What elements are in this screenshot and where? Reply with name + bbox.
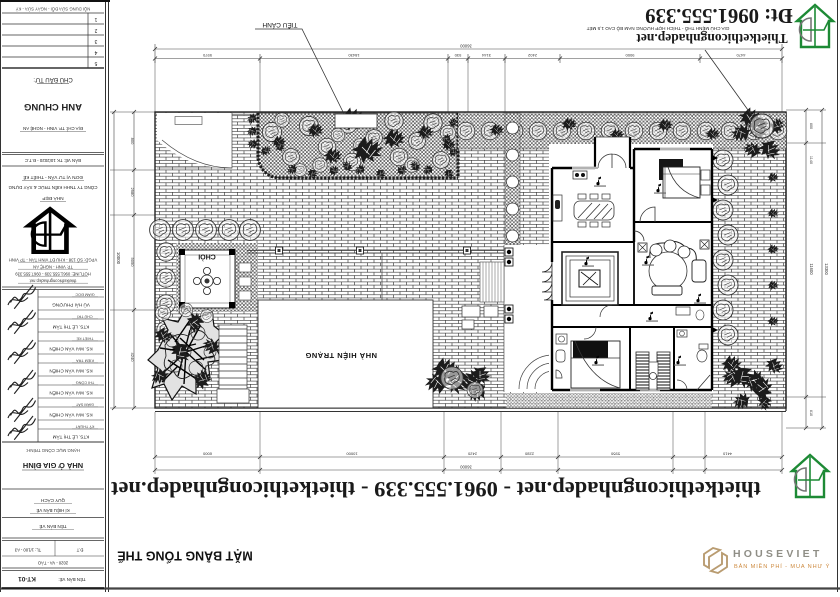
svg-text:KTS. LÊ THỊ TÂM: KTS. LÊ THỊ TÂM [53,325,90,332]
svg-text:KS. MAI VĂN CHIẾN: KS. MAI VĂN CHIẾN [49,391,92,397]
svg-text:4: 4 [94,49,97,55]
svg-text:600: 600 [809,123,813,129]
svg-text:4410: 4410 [722,451,732,456]
svg-text:ĐƠN VỊ TƯ VẤN - THIẾT KẾ: ĐƠN VỊ TƯ VẤN - THIẾT KẾ [23,175,82,181]
svg-text:2402: 2402 [527,53,537,58]
svg-text:thietkethicongnhadep.net - 096: thietkethicongnhadep.net - 0961.555.339 … [110,477,761,502]
svg-text:3144: 3144 [481,53,491,58]
svg-text:NHÀ HIỆN TRẠNG: NHÀ HIỆN TRẠNG [305,351,377,360]
svg-text:TÊN BẢN VẼ: TÊN BẢN VẼ [39,524,66,531]
svg-text:KÍ HIỆU BẢN VẼ: KÍ HIỆU BẢN VẼ [36,508,69,513]
svg-text:MẶT BẰNG TỔNG THỂ: MẶT BẰNG TỔNG THỂ [117,549,252,564]
svg-text:BẢN VẼ: TK 10/2020 - Đ.T.C: BẢN VẼ: TK 10/2020 - Đ.T.C [25,158,81,163]
svg-text:2020 - VA - TÀO: 2020 - VA - TÀO [37,560,68,565]
svg-text:BẢN MIỀN PHÍ - MUA NHƯ Ý: BẢN MIỀN PHÍ - MUA NHƯ Ý [734,563,830,570]
svg-text:GIÁM SÁT: GIÁM SÁT [75,403,94,407]
svg-text:6000: 6000 [202,451,212,456]
svg-text:4240: 4240 [130,353,135,363]
svg-text:5970: 5970 [202,53,212,58]
svg-text:11600: 11600 [809,263,814,275]
svg-text:5: 5 [94,60,97,66]
svg-text:ĐỊA CHỈ: TP. VINH - NGHỆ AN: ĐỊA CHỈ: TP. VINH - NGHỆ AN [23,126,83,131]
svg-text:13300: 13300 [824,263,829,275]
svg-text:9000: 9000 [625,53,635,58]
svg-text:Đt: 0961.555.339: Đt: 0961.555.339 [645,4,793,26]
svg-text:530: 530 [454,53,461,58]
svg-text:NỘI DUNG SỬA ĐỔI - NGÀY SỬA -: NỘI DUNG SỬA ĐỔI - NGÀY SỬA - KÝ [16,6,91,11]
svg-text:CÔNG TY TNHH KIẾN TRÚC & XÂY D: CÔNG TY TNHH KIẾN TRÚC & XÂY DỰNG [8,185,97,191]
svg-text:610: 610 [809,410,813,416]
svg-text:KS. MAI VĂN CHIẾN: KS. MAI VĂN CHIẾN [49,413,92,419]
svg-text:NHÀ ĐẸP: NHÀ ĐẸP [42,195,63,202]
svg-text:TIỂU CẢNH: TIỂU CẢNH [262,21,297,30]
svg-text:3: 3 [94,38,97,44]
svg-text:HOUSEVIET: HOUSEVIET [733,548,822,560]
svg-text:TL: 1/100 - A3: TL: 1/100 - A3 [14,547,41,552]
svg-text:TP. VINH - NGHỆ AN: TP. VINH - NGHỆ AN [33,264,73,269]
svg-text:2: 2 [94,27,97,33]
svg-text:HẠNG MỤC CÔNG TRÌNH:: HẠNG MỤC CÔNG TRÌNH: [26,448,80,453]
svg-text:HOTLINE: 0961.555.339 - 0967.5: HOTLINE: 0961.555.339 - 0967.555.339 [15,271,91,276]
svg-text:2420: 2420 [467,451,477,456]
svg-text:18430: 18430 [348,53,360,58]
svg-text:CHÒI: CHÒI [198,252,216,261]
svg-text:10000: 10000 [346,451,358,456]
svg-text:36000: 36000 [460,43,472,48]
svg-text:QUY CÁCH: QUY CÁCH [41,498,65,504]
svg-text:ANH CHUNG: ANH CHUNG [24,101,82,112]
svg-text:CHỦ ĐẦU TƯ:: CHỦ ĐẦU TƯ: [33,76,73,83]
svg-text:1: 1 [94,16,97,22]
svg-text:5950: 5950 [610,451,620,456]
svg-text:KS. MAI VĂN CHIẾN: KS. MAI VĂN CHIẾN [49,369,92,375]
svg-text:thietkethicongnhadep.net: thietkethicongnhadep.net [29,278,77,283]
svg-text:KT-01: KT-01 [18,575,36,582]
svg-text:800: 800 [130,138,135,145]
svg-text:5050: 5050 [130,258,135,268]
svg-text:VPGD: SỐ 138 - KHU ĐT VINH TÂN: VPGD: SỐ 138 - KHU ĐT VINH TÂN - TP VINH [9,257,97,262]
svg-text:NHÀ Ở GIA ĐÌNH: NHÀ Ở GIA ĐÌNH [23,461,83,470]
svg-text:TÊN BẢN VẼ:: TÊN BẢN VẼ: [58,577,85,582]
svg-text:2980: 2980 [130,188,135,198]
svg-text:VŨ HẢI PHƯỢNG: VŨ HẢI PHƯỢNG [52,303,90,309]
svg-text:4470: 4470 [736,53,746,58]
svg-text:36000: 36000 [460,464,472,469]
svg-text:1140: 1140 [809,156,813,164]
svg-text:10000: 10000 [116,252,121,265]
svg-text:KTS. LÊ THỊ TÂM: KTS. LÊ THỊ TÂM [53,435,90,442]
svg-text:2280: 2280 [524,451,534,456]
svg-text:Thietkethicongnhadep.net: Thietkethicongnhadep.net [636,31,788,46]
svg-text:Đ.T: Đ.T [76,547,83,552]
svg-text:KS. MAI VĂN CHIẾN: KS. MAI VĂN CHIẾN [49,347,92,353]
